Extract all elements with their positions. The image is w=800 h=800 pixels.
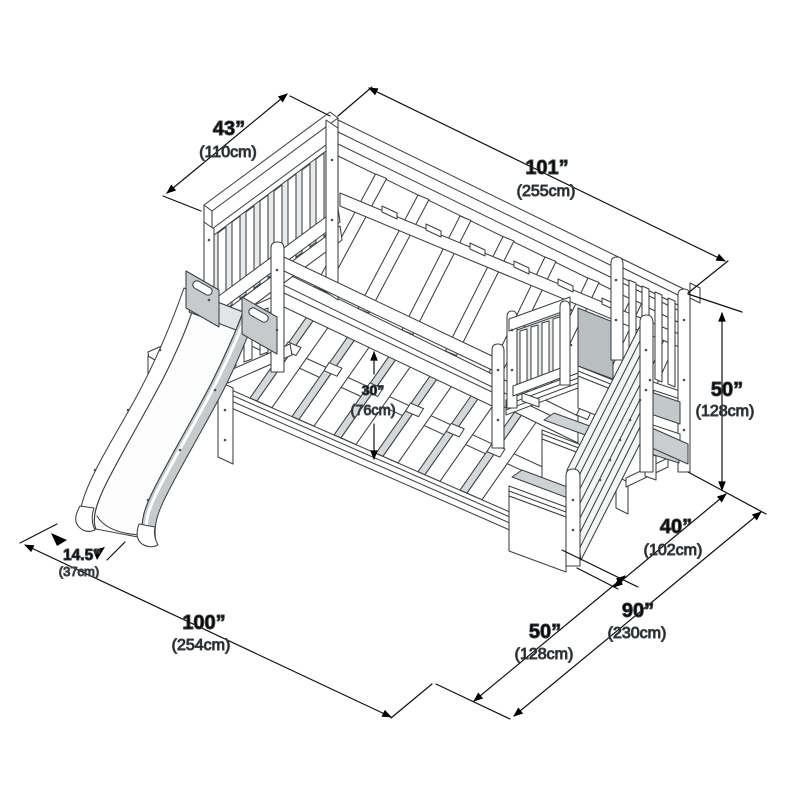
svg-text:101”: 101” (525, 157, 568, 179)
svg-text:(128cm): (128cm) (696, 403, 755, 420)
svg-text:(254cm): (254cm) (172, 637, 231, 654)
svg-text:(76cm): (76cm) (350, 403, 395, 419)
svg-text:90”: 90” (622, 600, 654, 622)
svg-text:(110cm): (110cm) (199, 144, 257, 161)
svg-text:50”: 50” (711, 379, 743, 401)
svg-text:(128cm): (128cm) (515, 646, 574, 663)
svg-text:(255cm): (255cm) (517, 183, 576, 200)
svg-text:43”: 43” (213, 118, 245, 140)
svg-text:(102cm): (102cm) (644, 542, 703, 559)
svg-text:100”: 100” (182, 612, 225, 634)
svg-text:50”: 50” (529, 621, 561, 643)
svg-text:(230cm): (230cm) (608, 625, 667, 642)
svg-text:14.5”: 14.5” (63, 547, 101, 564)
svg-text:30”: 30” (362, 382, 385, 398)
svg-text:(37cm): (37cm) (59, 564, 99, 579)
svg-text:40”: 40” (660, 516, 692, 538)
